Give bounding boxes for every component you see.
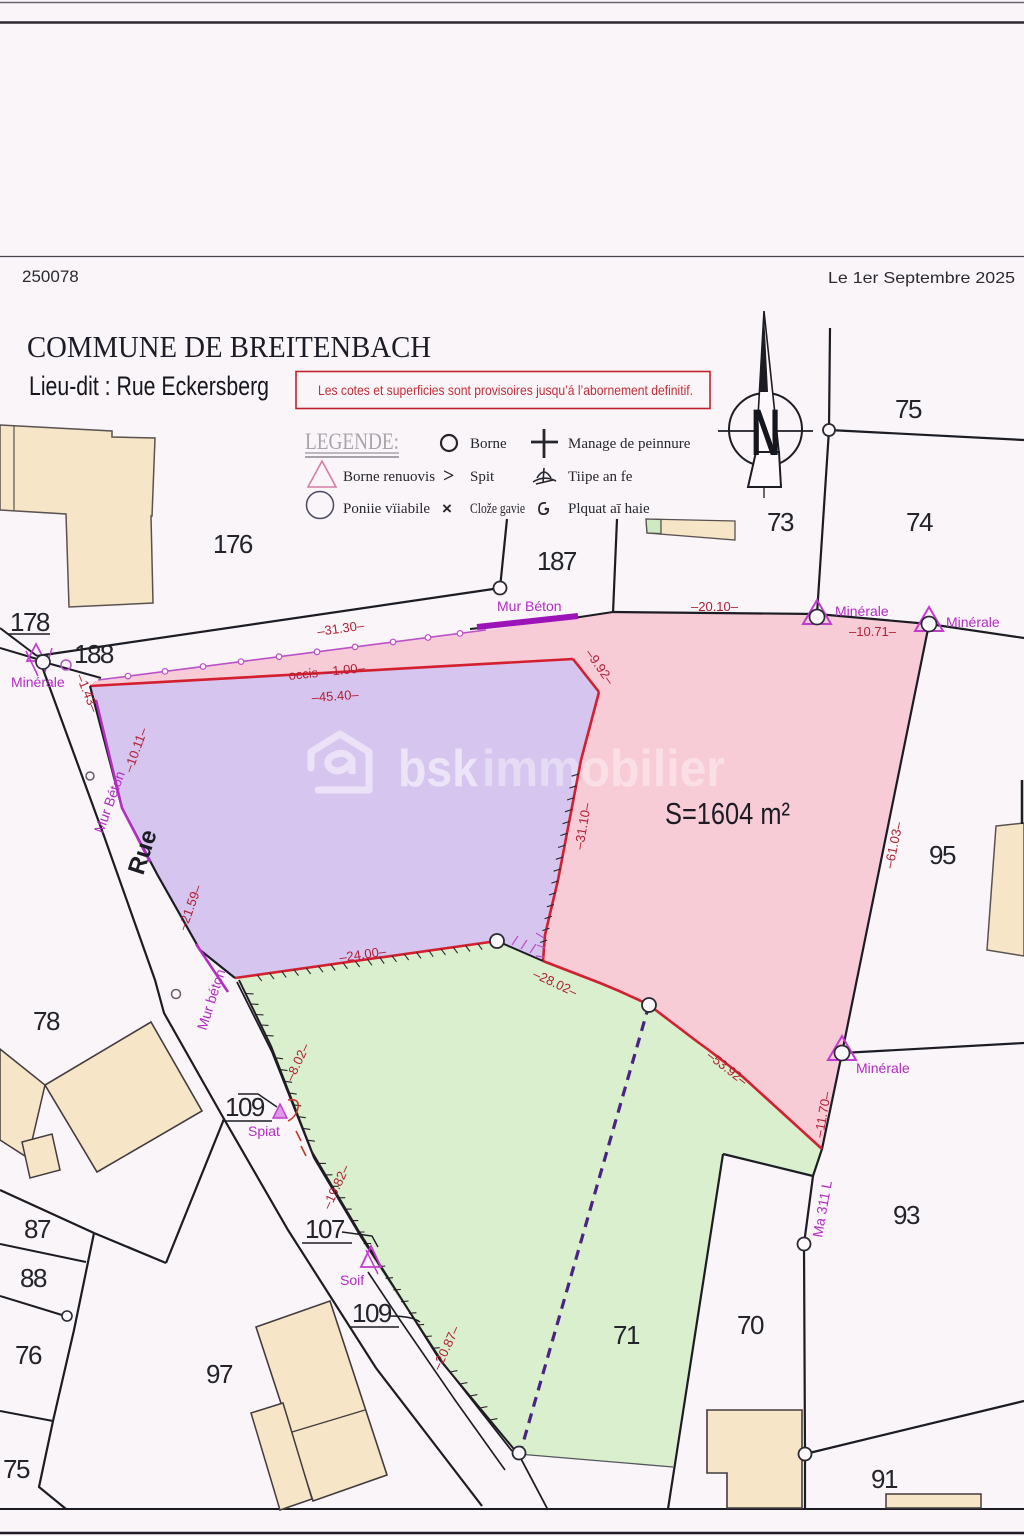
- svg-text:Minérale: Minérale: [11, 674, 65, 690]
- svg-text:Les cotes et superficies sont: Les cotes et superficies sont provisoire…: [318, 382, 693, 398]
- svg-text:Lieu-dit : Rue Eckersberg: Lieu-dit : Rue Eckersberg: [29, 371, 269, 401]
- svg-text:Le 1er Septembre 2025: Le 1er Septembre 2025: [828, 270, 1015, 287]
- svg-text:Soif: Soif: [340, 1272, 364, 1288]
- svg-text:bsk: bsk: [398, 740, 478, 798]
- svg-text:97: 97: [206, 1359, 233, 1389]
- svg-text:–10.71–: –10.71–: [849, 624, 897, 639]
- svg-text:70: 70: [737, 1310, 764, 1340]
- svg-text:188: 188: [74, 639, 114, 669]
- svg-text:75: 75: [3, 1454, 30, 1484]
- svg-text:95: 95: [929, 840, 956, 870]
- svg-text:Tiipe an fe: Tiipe an fe: [568, 469, 633, 485]
- svg-text:Borne renuovis: Borne renuovis: [343, 469, 435, 485]
- svg-text:178: 178: [10, 607, 50, 637]
- svg-text:–20.10–: –20.10–: [691, 599, 739, 614]
- svg-text:109: 109: [225, 1092, 265, 1122]
- svg-text:87: 87: [24, 1214, 51, 1244]
- svg-text:N: N: [751, 395, 781, 470]
- svg-text:75: 75: [895, 394, 922, 424]
- svg-text:187: 187: [537, 546, 577, 576]
- svg-text:250078: 250078: [22, 267, 79, 286]
- svg-text:107: 107: [305, 1214, 345, 1244]
- svg-text:73: 73: [767, 507, 794, 537]
- svg-text:Manage de peinnure: Manage de peinnure: [568, 436, 691, 452]
- svg-text:Plquat aī haie: Plquat aī haie: [568, 501, 650, 517]
- svg-text:LEGENDE:: LEGENDE:: [305, 429, 399, 454]
- svg-text:COMMUNE DE BREITENBACH: COMMUNE DE BREITENBACH: [27, 329, 431, 364]
- svg-text:S=1604 m²: S=1604 m²: [665, 796, 790, 831]
- svg-text:immobilier: immobilier: [482, 740, 725, 798]
- svg-text:×: ×: [442, 499, 452, 518]
- svg-text:109: 109: [352, 1298, 392, 1328]
- svg-text:78: 78: [33, 1006, 60, 1036]
- svg-text:88: 88: [20, 1263, 47, 1293]
- svg-text:Borne: Borne: [470, 436, 507, 452]
- svg-text:Poniie vïiabile: Poniie vïiabile: [343, 501, 430, 517]
- svg-text:>: >: [443, 465, 454, 487]
- svg-text:71: 71: [613, 1320, 640, 1350]
- svg-text:91: 91: [871, 1464, 898, 1494]
- svg-text:93: 93: [893, 1200, 920, 1230]
- svg-text:Clože gavie: Clože gavie: [470, 501, 525, 517]
- svg-text:76: 76: [15, 1340, 42, 1370]
- svg-text:Minérale: Minérale: [835, 603, 889, 619]
- svg-text:Spit: Spit: [470, 469, 495, 485]
- svg-text:Mur Béton: Mur Béton: [497, 598, 562, 614]
- svg-text:Minérale: Minérale: [946, 614, 1000, 630]
- svg-text:74: 74: [906, 507, 933, 537]
- svg-text:Spiat: Spiat: [248, 1123, 280, 1139]
- svg-text:Minérale: Minérale: [856, 1060, 910, 1076]
- svg-text:176: 176: [213, 529, 253, 559]
